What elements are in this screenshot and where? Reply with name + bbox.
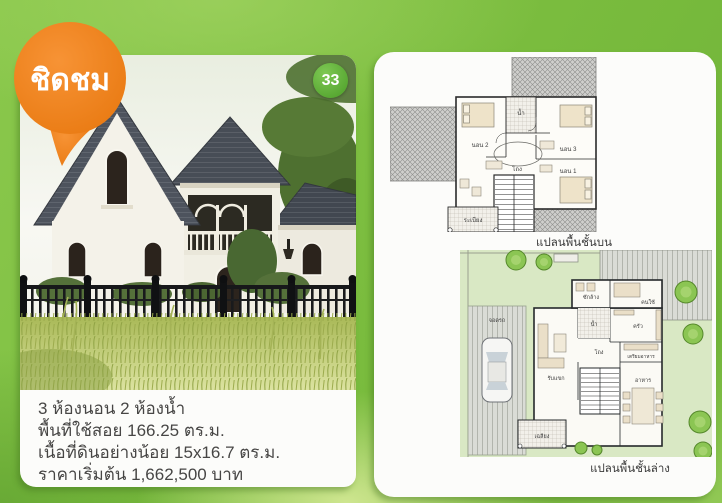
spec-bedrooms-bathrooms: 3 ห้องนอน 2 ห้องน้ำ [38, 398, 348, 420]
bubble-label: ชิดชม [30, 64, 110, 97]
lower-stairs [580, 368, 620, 414]
upper-floorplan: นอน 2 น้ำ นอน 3 โถง นอน 1 ระเบียง [390, 57, 655, 232]
project-bubble: ชิดชม [6, 16, 142, 168]
lower-floorplan-caption: แปลนพื้นชั้นล่าง [520, 460, 716, 478]
room-label-porch: เฉลียง [535, 433, 550, 440]
specs-list: 3 ห้องนอน 2 ห้องน้ำ พื้นที่ใช้สอย 166.25… [38, 398, 348, 486]
room-label-bath-lower: น้ำ [591, 320, 598, 328]
unit-number-badge: 33 [313, 63, 348, 98]
spec-land-size: เนื้อที่ดินอย่างน้อย 15x16.7 ตร.ม. [38, 442, 348, 464]
garden-bench-icon [554, 254, 578, 262]
room-label-balcony: ระเบียง [464, 216, 483, 224]
room-label-dining: อาหาร [635, 378, 651, 384]
spec-usable-area: พื้นที่ใช้สอย 166.25 ตร.ม. [38, 420, 348, 442]
room-label-maid: คนใช้ [641, 299, 655, 306]
room-label-living: รับแขก [547, 375, 564, 382]
upper-stairs [494, 175, 534, 232]
room-label-hall-upper: โถง [512, 165, 522, 173]
floorplan-card: นอน 2 น้ำ นอน 3 โถง นอน 1 ระเบียง แปลนพื… [374, 52, 716, 497]
car-icon [482, 338, 512, 402]
room-label-kitchen: ครัว [633, 323, 643, 330]
room-label-bed1: นอน 1 [560, 169, 577, 175]
room-label-pantry: เตรียมอาหาร [627, 353, 655, 360]
room-label-bed3: นอน 3 [560, 147, 577, 153]
room-label-hall-lower: โถง [595, 348, 604, 356]
spec-starting-price: ราคาเริ่มต้น 1,662,500 บาท [38, 464, 348, 486]
lower-floorplan: จอดรถ [460, 250, 712, 457]
room-label-bed2: นอน 2 [472, 143, 489, 149]
room-label-laundry: ซักล้าง [583, 294, 600, 301]
room-label-carport: จอดรถ [489, 318, 505, 324]
